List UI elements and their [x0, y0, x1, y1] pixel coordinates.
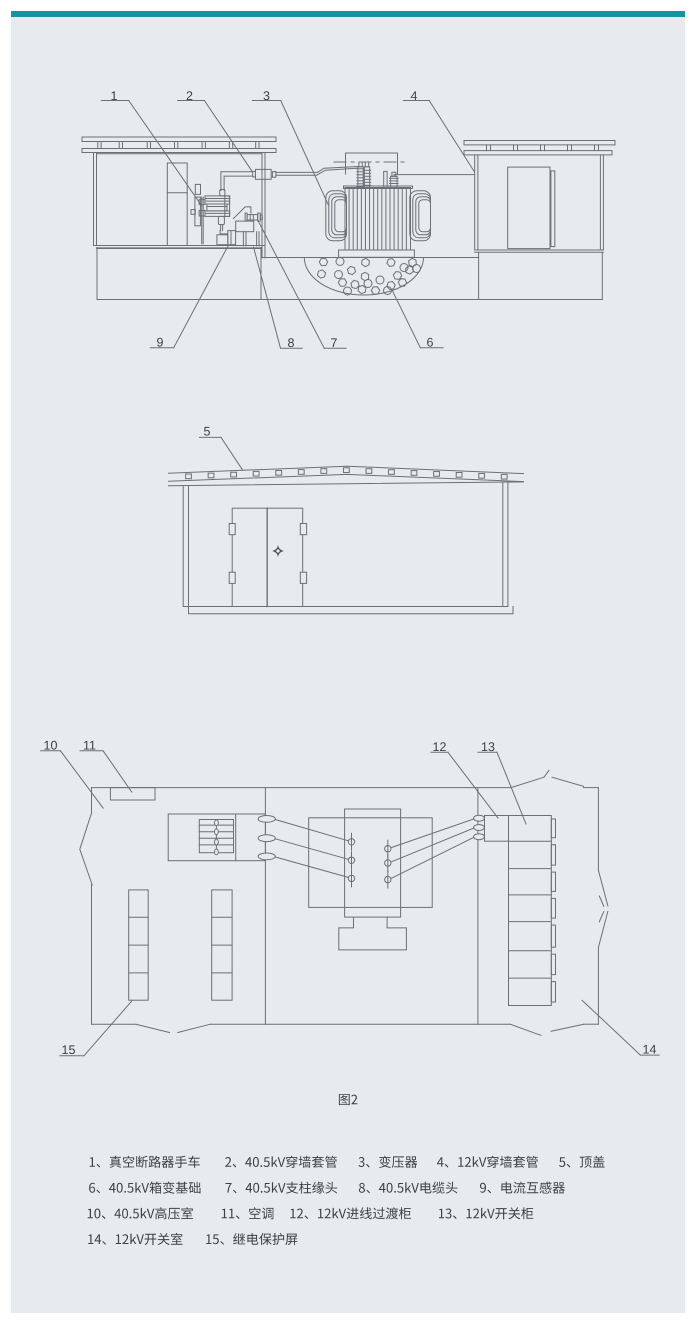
svg-text:15: 15	[62, 1043, 76, 1057]
svg-text:5: 5	[204, 425, 211, 439]
svg-text:14: 14	[643, 1043, 657, 1057]
